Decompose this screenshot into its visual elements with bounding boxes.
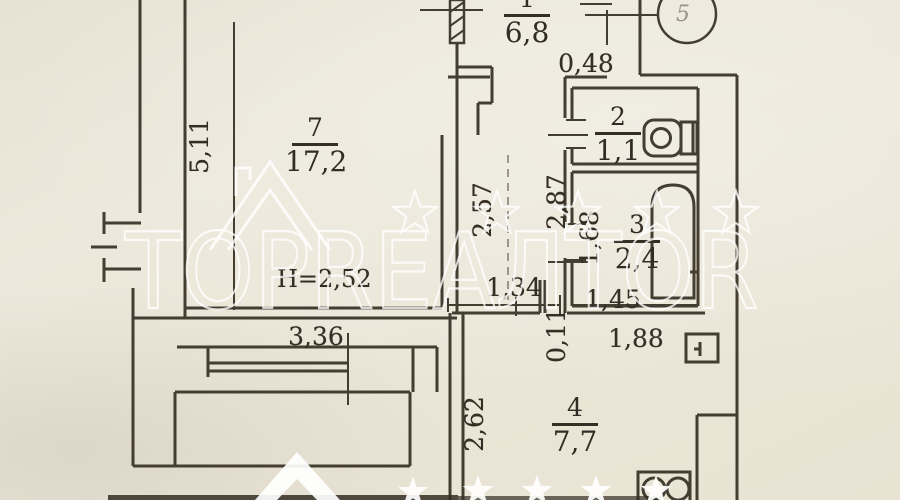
dim-living-width: 3,36 [286,323,346,351]
dim-hall-pier: 0,48 [551,50,621,78]
dim-kitchen-length: 2,62 [461,394,489,454]
room-label-kitchen: 4 7,7 [545,395,605,456]
room-number: 7 [285,115,345,141]
dim-wall-thickness: 0,11 [543,305,571,365]
room-number: 3 [607,212,667,238]
room-area: 7,7 [545,428,605,456]
wall-hatching [450,0,464,43]
room-area: 17,2 [285,148,345,176]
dim-bath-width: 1,45 [578,286,648,314]
dim-corridor-width: 1,34 [486,274,542,302]
room-area: 2,4 [607,245,667,273]
balcony-slab [133,392,410,466]
room-label-wc: 2 1,1 [588,104,648,165]
dim-bath-length: 1,68 [576,208,604,268]
room-number: 4 [545,395,605,421]
stove-icon [638,472,690,500]
room-label-hall: 1 6,8 [497,0,557,47]
room-label-bath: 3 2,4 [607,212,667,273]
room-area: 1,1 [588,137,648,165]
ceiling-height-label: H=2,52 [277,265,369,293]
dim-bath-outer-wall: 2,87 [543,172,571,232]
radiator-icon [91,212,141,282]
vent-shaft-icon [686,334,718,362]
room-number-balcony: 5 [676,2,690,27]
room-number: 2 [588,104,648,130]
dim-corridor-length: 2,57 [469,180,497,240]
room-area: 6,8 [497,19,557,47]
walls-drawing [0,0,900,500]
toilet-icon [644,120,697,156]
scan-edge-shadow [108,495,658,500]
room-label-living: 7 17,2 [285,115,345,176]
floor-plan: 7 17,2 1 6,8 2 1,1 3 2,4 4 7,7 5 0,48 5,… [0,0,900,500]
room-number: 1 [497,0,557,12]
dim-living-length: 5,11 [186,116,214,176]
dim-kitchen-wall: 1,88 [606,325,666,353]
